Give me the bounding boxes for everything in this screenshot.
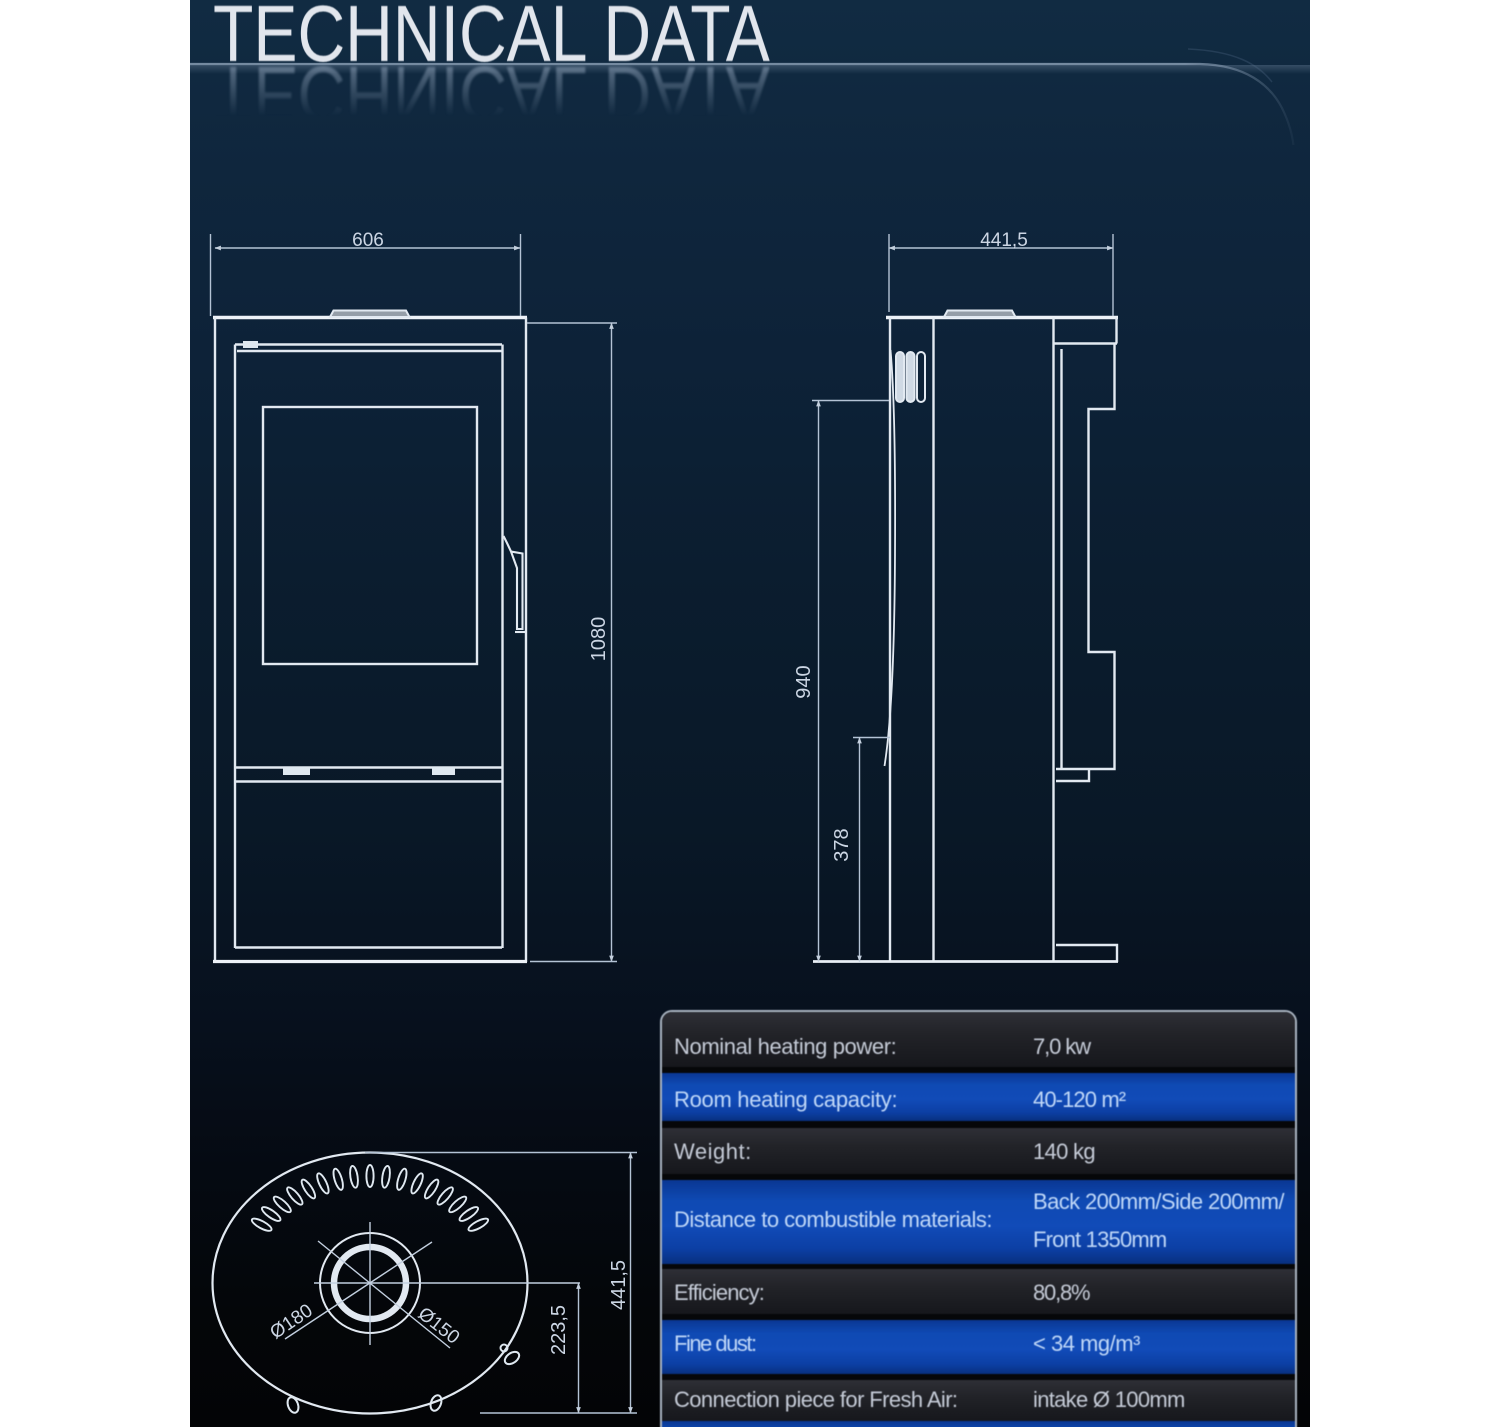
svg-text:441,5: 441,5 [608,1260,630,1310]
svg-text:378: 378 [831,828,853,861]
svg-text:1080: 1080 [588,617,610,662]
svg-text:606: 606 [352,230,384,251]
svg-text:223,5: 223,5 [548,1305,570,1355]
svg-text:940: 940 [793,665,815,698]
svg-text:Ø150: Ø150 [414,1303,464,1348]
svg-text:Ø180: Ø180 [266,1300,316,1343]
svg-text:441,5: 441,5 [980,230,1028,251]
